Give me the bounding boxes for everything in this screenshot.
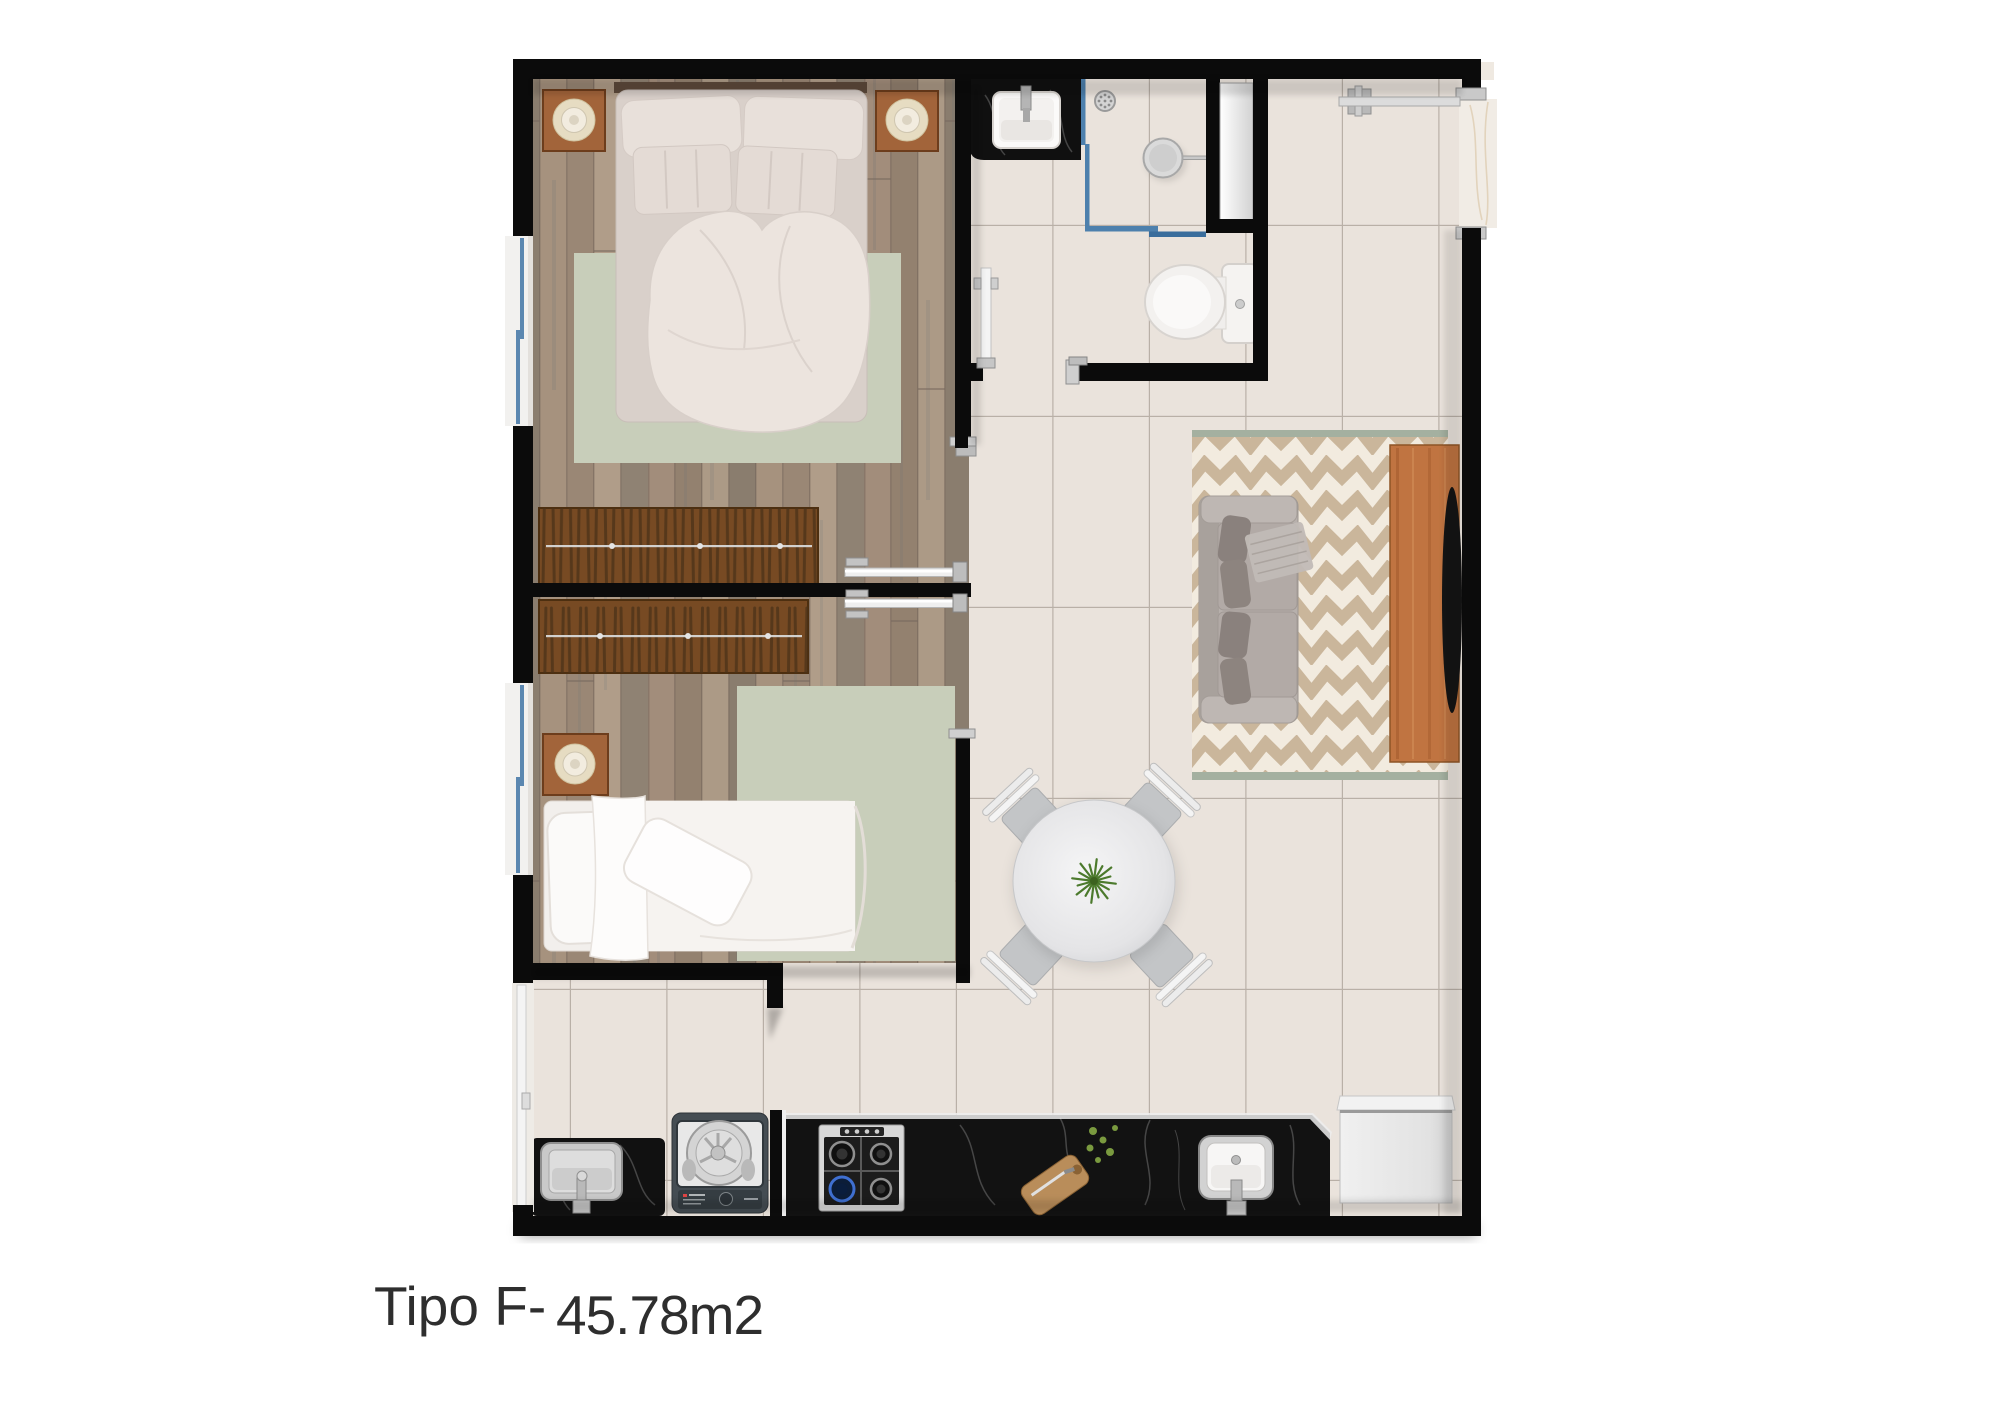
svg-text:Tipo F-: Tipo F- [374, 1275, 546, 1337]
svg-text:45.78m2: 45.78m2 [556, 1284, 763, 1346]
